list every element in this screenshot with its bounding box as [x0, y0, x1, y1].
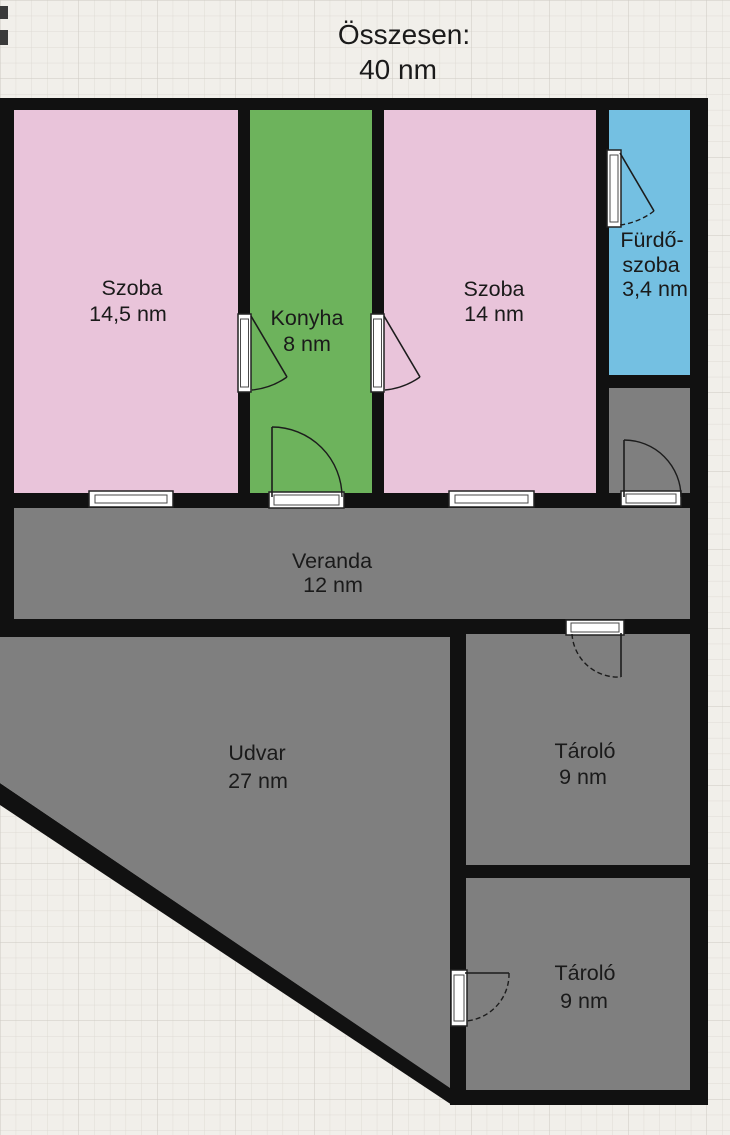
label-szoba2-area: 14 nm — [464, 302, 524, 326]
label-veranda-name: Veranda — [292, 549, 372, 573]
plan-title-line2: 40 nm — [359, 54, 437, 85]
label-szoba2-name: Szoba — [464, 277, 525, 301]
edge-artifact-1 — [0, 6, 8, 19]
plan-title-line1: Összesen: — [338, 19, 470, 50]
label-szoba1-name: Szoba — [102, 276, 163, 300]
label-tarolo2-area: 9 nm — [560, 989, 608, 1013]
label-tarolo1-name: Tároló — [555, 739, 616, 763]
label-udvar-area: 27 nm — [228, 769, 288, 793]
label-udvar-name: Udvar — [228, 741, 285, 765]
floorplan-svg: Összesen: 40 nm Szoba 14,5 nm Konyha 8 n… — [0, 0, 730, 1135]
label-furdoszoba-name-line1: Fürdő- — [620, 228, 683, 252]
label-tarolo2-name: Tároló — [555, 961, 616, 985]
floorplan-canvas: Összesen: 40 nm Szoba 14,5 nm Konyha 8 n… — [0, 0, 730, 1135]
label-furdoszoba-name-line2: szoba — [622, 253, 679, 277]
label-tarolo1-area: 9 nm — [559, 765, 607, 789]
room-konyha — [250, 110, 372, 493]
label-konyha-name: Konyha — [271, 306, 344, 330]
label-veranda-area: 12 nm — [303, 573, 363, 597]
label-konyha-area: 8 nm — [283, 332, 331, 356]
window-icon-szoba-2 — [449, 491, 534, 507]
window-icon-szoba-1 — [89, 491, 173, 507]
label-furdoszoba-area: 3,4 nm — [622, 277, 688, 301]
label-szoba1-area: 14,5 nm — [89, 302, 167, 326]
edge-artifact-2 — [0, 30, 8, 45]
